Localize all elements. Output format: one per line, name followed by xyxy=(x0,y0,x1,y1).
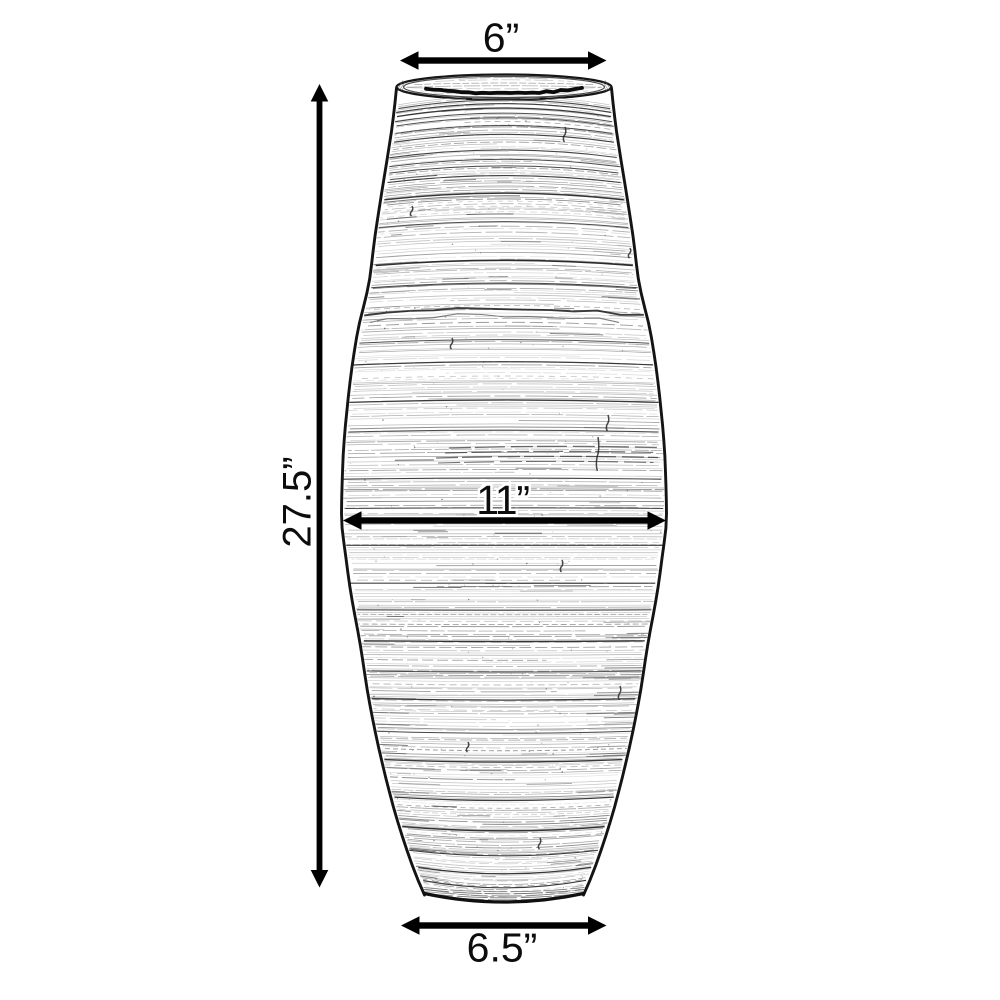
svg-text:6”: 6” xyxy=(483,15,519,61)
svg-text:6.5”: 6.5” xyxy=(467,925,538,971)
svg-text:11”: 11” xyxy=(476,477,529,523)
svg-text:27.5”: 27.5” xyxy=(276,456,320,547)
